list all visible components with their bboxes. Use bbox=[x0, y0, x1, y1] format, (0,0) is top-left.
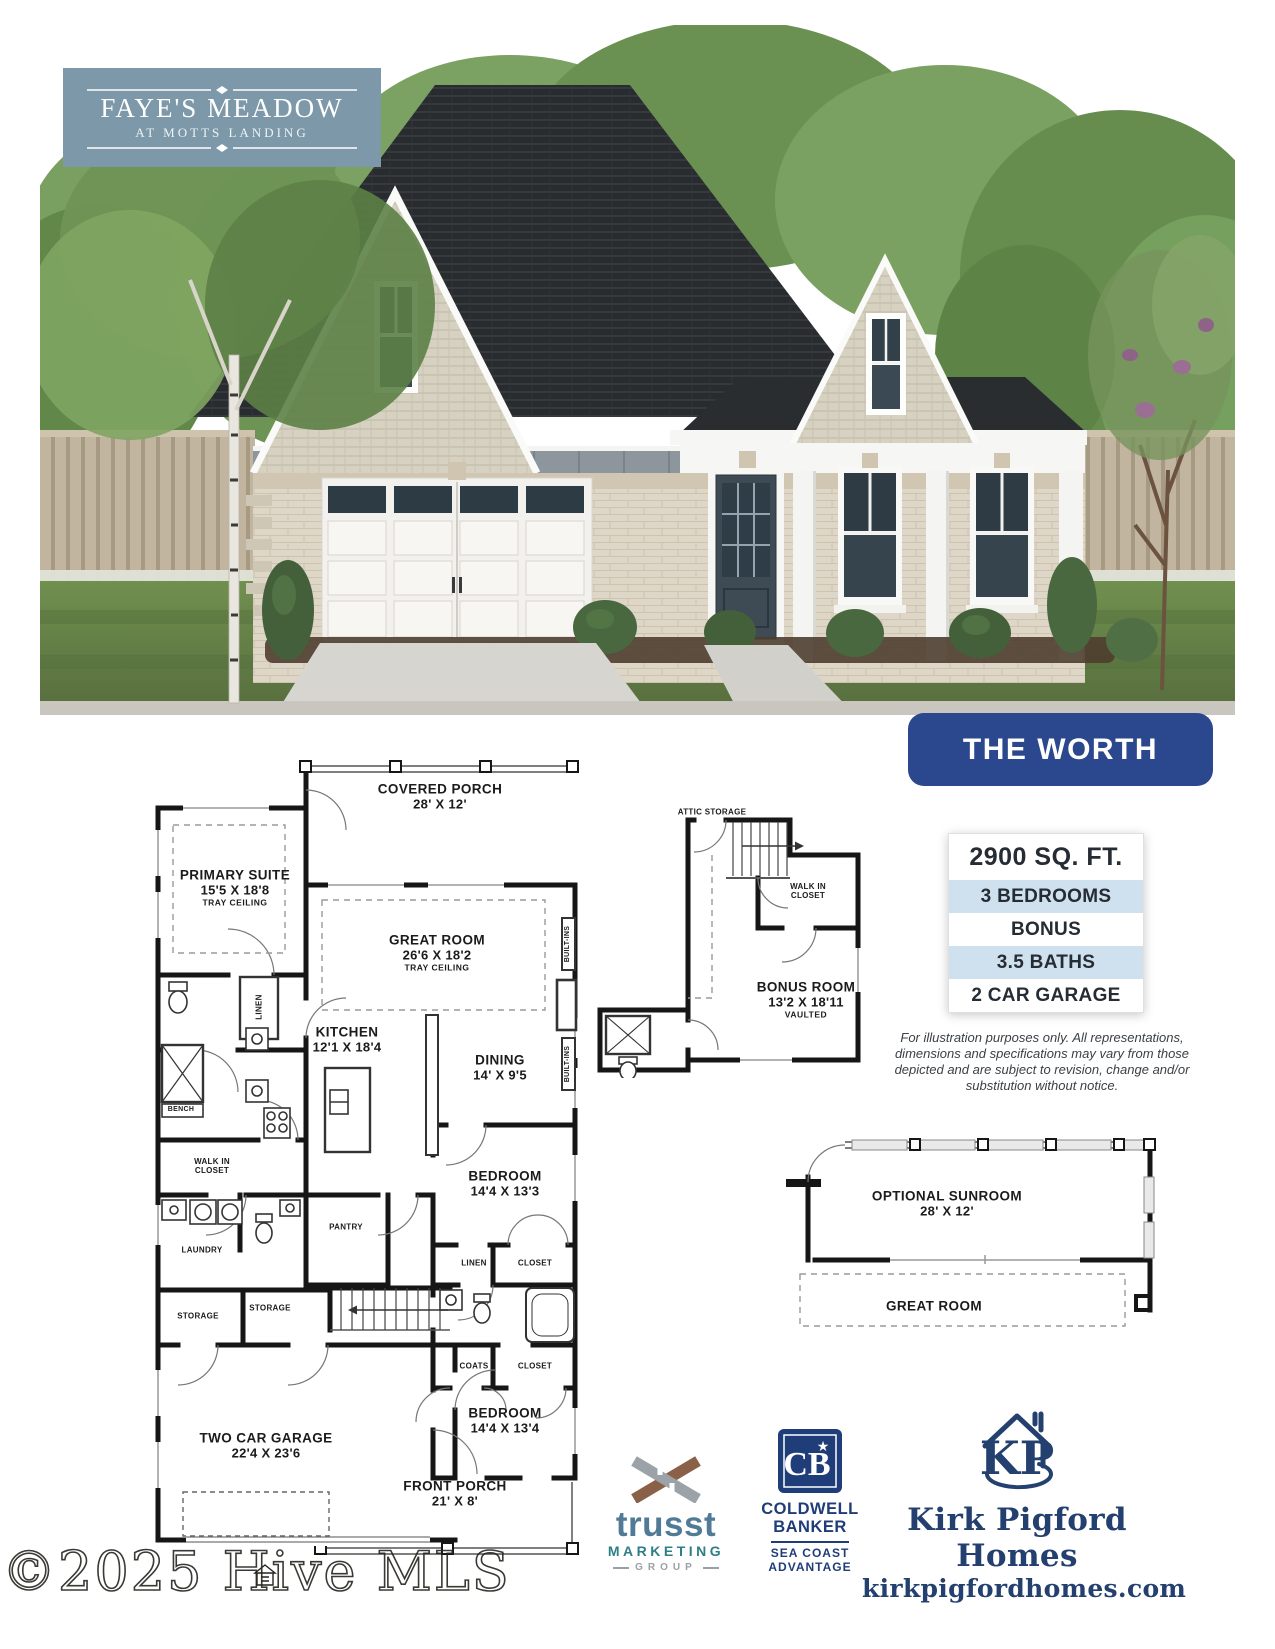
plan-fixtures bbox=[162, 918, 576, 1342]
room-label-front-porch: FRONT PORCH 21' X 8' bbox=[403, 1479, 506, 1508]
spec-bedrooms: 3 BEDROOMS bbox=[949, 880, 1143, 913]
sunroom-floor-plan: OPTIONAL SUNROOM 28' X 12' GREAT ROOM bbox=[740, 1082, 1170, 1332]
bonus-floor-plan: ATTIC STORAGE WALK IN CLOSET BONUS ROOM … bbox=[592, 758, 892, 1078]
label-coats: COATS bbox=[460, 1361, 489, 1370]
main-floor-plan: COVERED PORCH 28' X 12' PRIMARY SUITE 15… bbox=[78, 730, 583, 1560]
coldwell-divider bbox=[771, 1541, 849, 1543]
label-attic-storage: ATTIC STORAGE bbox=[678, 807, 747, 816]
spec-sqft: 2900 SQ. FT. bbox=[949, 834, 1143, 880]
label-bench: BENCH bbox=[168, 1106, 194, 1114]
spec-box: 2900 SQ. FT. 3 BEDROOMS BONUS 3.5 BATHS … bbox=[948, 833, 1144, 1013]
builder-website: kirkpigfordhomes.com bbox=[862, 1574, 1172, 1603]
coldwell-line3: SEA COAST bbox=[746, 1547, 874, 1561]
kp-monogram: KP bbox=[980, 1431, 1055, 1485]
label-storage-2: STORAGE bbox=[249, 1303, 291, 1312]
label-closet-2: CLOSET bbox=[518, 1361, 552, 1370]
room-label-covered-porch: COVERED PORCH 28' X 12' bbox=[378, 782, 502, 811]
bonus-plan-drawing bbox=[592, 758, 892, 1078]
coldwell-banker-cb-icon: CB ★ bbox=[777, 1428, 843, 1494]
label-laundry: LAUNDRY bbox=[182, 1245, 223, 1254]
kp-house-monogram-icon: KP bbox=[969, 1408, 1065, 1500]
community-badge: FAYE'S MEADOW AT MOTTS LANDING bbox=[63, 68, 381, 167]
label-linen-2: LINEN bbox=[461, 1258, 487, 1267]
house-rendering: FAYE'S MEADOW AT MOTTS LANDING bbox=[40, 25, 1235, 715]
label-built-ins-1: BUILT-INS bbox=[564, 926, 572, 962]
label-pantry: PANTRY bbox=[329, 1222, 363, 1231]
room-label-kitchen: KITCHEN 12'1 X 18'4 bbox=[313, 1025, 382, 1054]
trusst-marketing: MARKETING bbox=[596, 1543, 736, 1559]
room-label-great-room: GREAT ROOM 26'6 X 18'2 TRAY CEILING bbox=[389, 933, 485, 972]
room-label-bedroom-2: BEDROOM 14'4 X 13'4 bbox=[468, 1406, 541, 1435]
coldwell-line1: COLDWELL bbox=[746, 1500, 874, 1518]
flyer-page: FAYE'S MEADOW AT MOTTS LANDING THE WORTH bbox=[0, 0, 1275, 1649]
spec-garage: 2 CAR GARAGE bbox=[949, 979, 1143, 1012]
label-linen: LINEN bbox=[254, 994, 263, 1020]
dash-left bbox=[613, 1567, 629, 1569]
coldwell-line4: ADVANTAGE bbox=[746, 1561, 874, 1575]
trusst-group: GROUP bbox=[635, 1562, 697, 1573]
cb-star-icon: ★ bbox=[817, 1438, 830, 1454]
trusst-wordmark: trusst bbox=[596, 1508, 736, 1541]
room-label-dining: DINING 14' X 9'5 bbox=[473, 1053, 527, 1082]
label-walk-in-closet: WALK IN CLOSET bbox=[188, 1157, 236, 1175]
garage-door bbox=[322, 462, 592, 642]
coldwell-line2: BANKER bbox=[746, 1518, 874, 1536]
dash-right bbox=[703, 1567, 719, 1569]
label-closet-1: CLOSET bbox=[518, 1258, 552, 1267]
room-label-bedroom-1: BEDROOM 14'4 X 13'3 bbox=[468, 1169, 541, 1198]
room-label-primary-suite: PRIMARY SUITE 15'5 X 18'8 TRAY CEILING bbox=[180, 868, 290, 907]
builder-name: Kirk Pigford Homes bbox=[862, 1502, 1172, 1574]
room-label-great-room-2: GREAT ROOM bbox=[886, 1300, 982, 1315]
trusst-logo: trusst MARKETING GROUP bbox=[596, 1455, 736, 1573]
label-bonus-wic: WALK IN CLOSET bbox=[784, 882, 832, 900]
room-label-sunroom: OPTIONAL SUNROOM 28' X 12' bbox=[872, 1189, 1022, 1218]
room-label-garage: TWO CAR GARAGE 22'4 X 23'6 bbox=[199, 1431, 332, 1460]
spec-baths: 3.5 BATHS bbox=[949, 946, 1143, 979]
trusst-x-icon bbox=[624, 1455, 708, 1503]
plan-name-banner: THE WORTH bbox=[908, 713, 1213, 786]
kirk-pigford-logo: KP Kirk Pigford Homes kirkpigfordhomes.c… bbox=[862, 1408, 1172, 1603]
badge-rules bbox=[63, 68, 381, 167]
trusst-group-line: GROUP bbox=[596, 1562, 736, 1573]
spec-bonus: BONUS bbox=[949, 913, 1143, 946]
plan-name: THE WORTH bbox=[963, 733, 1158, 767]
room-label-bonus-room: BONUS ROOM 13'2 X 18'11 VAULTED bbox=[757, 980, 856, 1019]
label-built-ins-2: BUILT-INS bbox=[564, 1046, 572, 1082]
equal-housing-icon bbox=[253, 1563, 277, 1587]
label-storage-1: STORAGE bbox=[177, 1311, 219, 1320]
coldwell-banker-logo: CB ★ COLDWELL BANKER SEA COAST ADVANTAGE bbox=[746, 1428, 874, 1575]
